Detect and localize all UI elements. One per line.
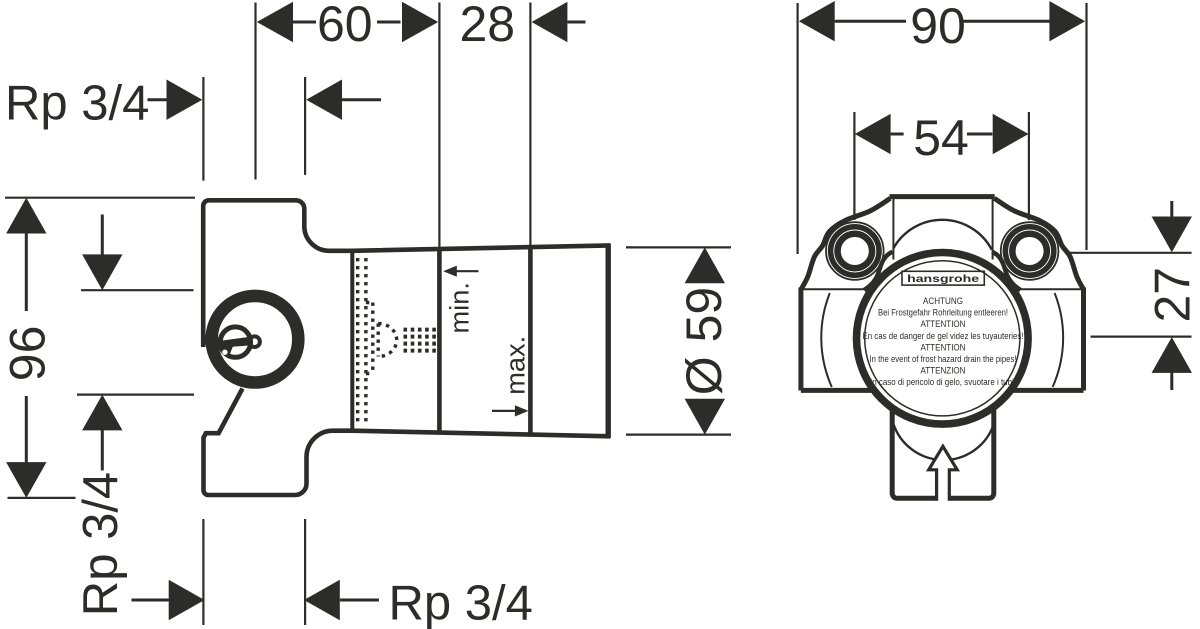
svg-text:Bei Frostgefahr Rohrleitung en: Bei Frostgefahr Rohrleitung entleeren! xyxy=(878,308,1008,318)
svg-text:27: 27 xyxy=(1144,267,1200,323)
svg-text:hansgrohe: hansgrohe xyxy=(907,274,979,285)
svg-text:Rp 3/4: Rp 3/4 xyxy=(389,577,533,629)
svg-text:28: 28 xyxy=(460,0,516,52)
svg-text:min.: min. xyxy=(444,282,475,333)
svg-text:ATTENZION: ATTENZION xyxy=(921,366,966,377)
svg-text:90: 90 xyxy=(910,0,966,54)
svg-text:ATTENTION: ATTENTION xyxy=(921,342,966,353)
svg-text:In the event of frost hazard d: In the event of frost hazard drain the p… xyxy=(870,354,1017,364)
svg-text:En cas de danger de gel videz: En cas de danger de gel videz les tuyaut… xyxy=(863,331,1024,341)
svg-text:54: 54 xyxy=(913,110,969,166)
svg-text:max.: max. xyxy=(500,336,531,395)
svg-text:ACHTUNG: ACHTUNG xyxy=(923,296,963,307)
svg-text:96: 96 xyxy=(0,326,55,382)
svg-text:Rp 3/4: Rp 3/4 xyxy=(5,77,149,131)
svg-text:60: 60 xyxy=(317,0,373,52)
svg-text:ATTENTION: ATTENTION xyxy=(921,319,966,330)
svg-text:Rp 3/4: Rp 3/4 xyxy=(74,472,128,616)
svg-text:In caso di pericolo di gelo, s: In caso di pericolo di gelo, svuotare i … xyxy=(870,377,1016,387)
svg-text:Ø 59: Ø 59 xyxy=(676,287,732,395)
